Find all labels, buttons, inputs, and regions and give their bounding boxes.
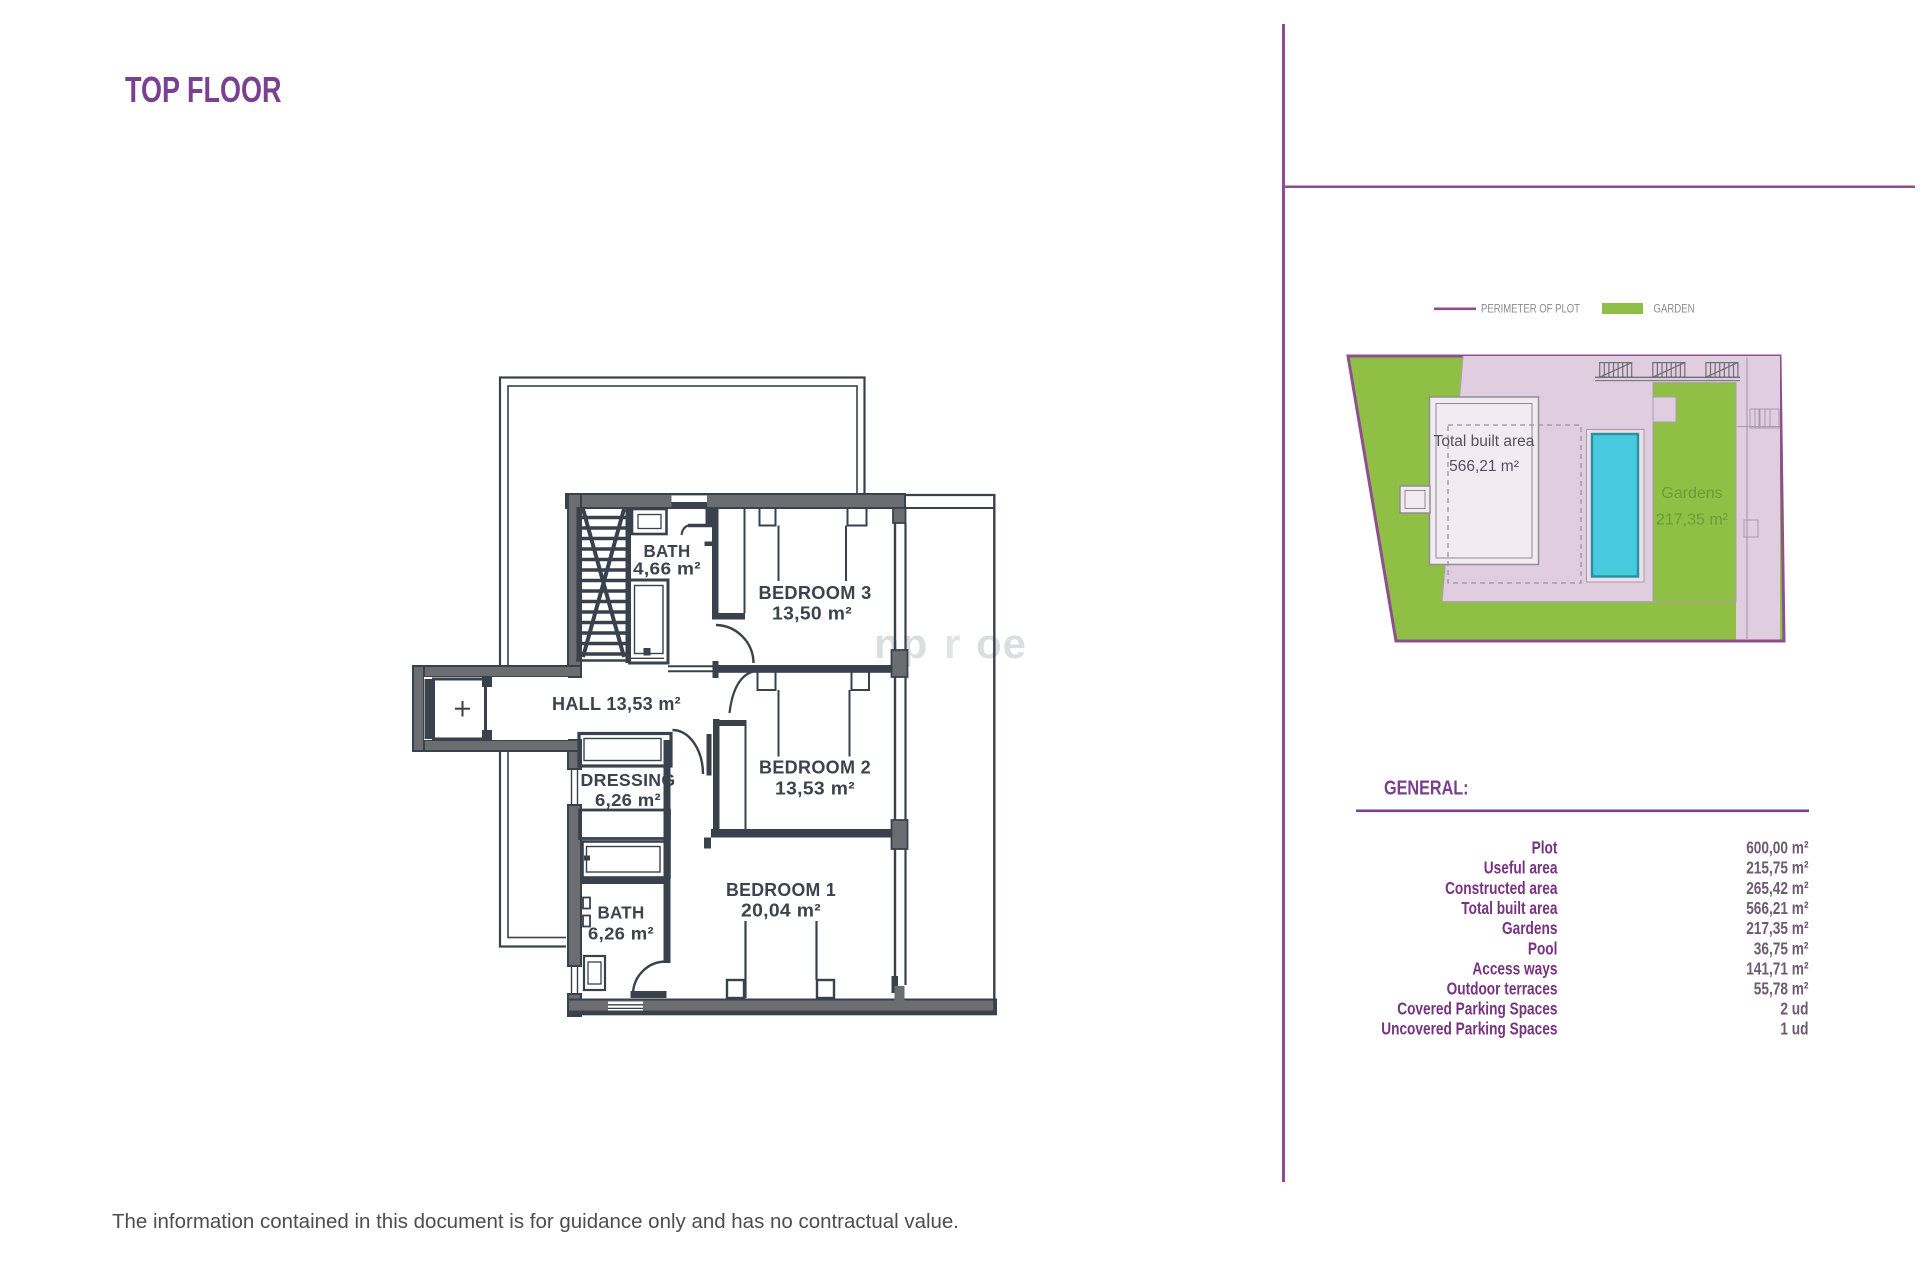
svg-text:13,53 m²: 13,53 m² (775, 779, 855, 799)
svg-text:55,78 m²: 55,78 m² (1754, 980, 1809, 999)
svg-text:Plot: Plot (1532, 839, 1558, 858)
svg-text:20,04 m²: 20,04 m² (741, 901, 821, 921)
svg-text:DRESSING: DRESSING (581, 770, 676, 790)
svg-text:Total built area: Total built area (1434, 433, 1535, 450)
svg-text:36,75 m²: 36,75 m² (1754, 940, 1809, 959)
svg-text:TOP FLOOR: TOP FLOOR (125, 69, 282, 110)
svg-text:566,21 m²: 566,21 m² (1746, 899, 1808, 918)
svg-text:BEDROOM 2: BEDROOM 2 (759, 758, 871, 778)
svg-text:6,26 m²: 6,26 m² (588, 924, 654, 944)
svg-text:BATH: BATH (598, 903, 645, 923)
svg-text:BEDROOM 3: BEDROOM 3 (759, 583, 872, 603)
svg-text:566,21 m²: 566,21 m² (1449, 458, 1519, 475)
svg-text:Pool: Pool (1528, 940, 1558, 959)
svg-text:Covered Parking Spaces: Covered Parking Spaces (1397, 1000, 1557, 1019)
svg-text:Useful area: Useful area (1484, 859, 1558, 878)
svg-text:Gardens: Gardens (1661, 485, 1722, 502)
svg-text:The information contained in t: The information contained in this docume… (112, 1210, 959, 1233)
svg-text:GARDEN: GARDEN (1654, 304, 1695, 316)
svg-text:Gardens: Gardens (1502, 919, 1558, 938)
svg-text:215,75 m²: 215,75 m² (1746, 859, 1808, 878)
svg-text:BEDROOM 1: BEDROOM 1 (726, 880, 836, 900)
svg-text:6,26 m²: 6,26 m² (595, 790, 661, 810)
svg-text:2 ud: 2 ud (1780, 1000, 1808, 1019)
svg-text:1 ud: 1 ud (1780, 1020, 1808, 1039)
svg-text:Uncovered Parking Spaces: Uncovered Parking Spaces (1381, 1020, 1557, 1039)
svg-text:Total built area: Total built area (1461, 899, 1557, 918)
svg-text:13,50 m²: 13,50 m² (772, 604, 852, 624)
svg-text:600,00 m²: 600,00 m² (1746, 839, 1808, 858)
svg-text:217,35 m²: 217,35 m² (1746, 919, 1808, 938)
svg-text:oe: oe (976, 620, 1027, 667)
svg-text:Outdoor terraces: Outdoor terraces (1447, 980, 1558, 999)
svg-text:217,35 m²: 217,35 m² (1656, 512, 1729, 529)
svg-text:Access ways: Access ways (1472, 960, 1557, 979)
svg-text:4,66 m²: 4,66 m² (633, 559, 701, 579)
svg-text:Constructed area: Constructed area (1445, 879, 1557, 898)
svg-text:HALL 13,53 m²: HALL 13,53 m² (552, 693, 681, 714)
svg-text:141,71 m²: 141,71 m² (1746, 960, 1808, 979)
svg-text:GENERAL:: GENERAL: (1384, 776, 1469, 799)
svg-text:265,42 m²: 265,42 m² (1746, 879, 1808, 898)
svg-text:PERIMETER OF PLOT: PERIMETER OF PLOT (1481, 304, 1580, 316)
svg-text:r: r (944, 620, 960, 667)
